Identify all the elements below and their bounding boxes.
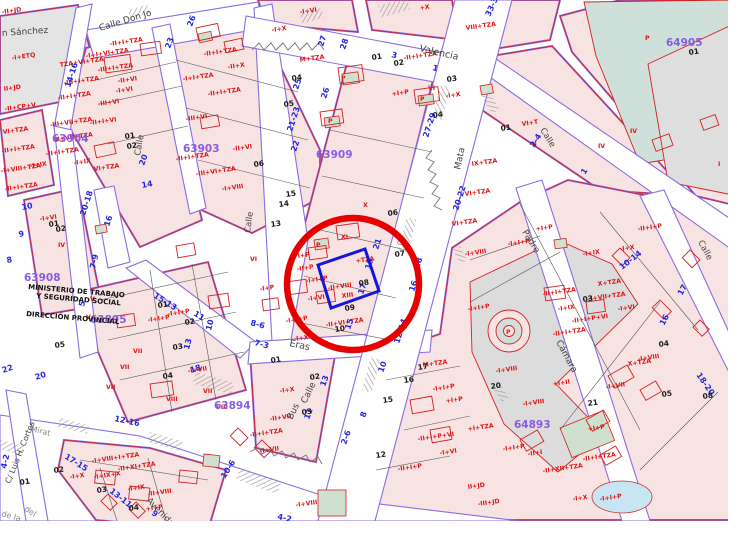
right-margin (728, 0, 738, 540)
red-type-label: P (506, 329, 511, 336)
block-number-label: 63903 (183, 143, 220, 155)
red-type-label: VII (106, 384, 115, 391)
parcel-number-label: 14 (278, 199, 290, 209)
block-number-label: 64893 (514, 419, 551, 431)
red-type-label: VIII (166, 396, 178, 403)
parcel-number-label: 04 (658, 339, 670, 349)
courtyard-rect (554, 238, 567, 249)
parcel-number-label: 06 (387, 208, 399, 218)
parcel-number-label: 01 (19, 477, 31, 487)
red-type-label: VII (120, 364, 129, 371)
block-number-label: 64905 (666, 37, 703, 49)
parcel-number-label: 15 (382, 395, 394, 405)
parcel-number-label: 03 (301, 407, 313, 417)
parcel-number-label: 03 (446, 74, 458, 84)
red-type-label: P (328, 118, 333, 125)
red-type-label: P (645, 35, 650, 42)
parcel-number-label: 01 (500, 123, 512, 133)
courtyard-rect (318, 490, 346, 516)
parcel-number-label: 20 (490, 381, 502, 391)
parcel-number-label: 02 (309, 372, 321, 382)
parcel-number-label: 10 (334, 324, 346, 334)
red-type-label: P (341, 75, 346, 82)
red-type-label: IV (598, 143, 605, 150)
parcel-number-label: 02 (55, 224, 67, 234)
parcel-number-label: 01 (270, 355, 282, 365)
red-type-label: P (316, 242, 321, 249)
parcel-number-label: 17 (417, 362, 429, 372)
bottom-margin (0, 521, 738, 540)
parcel-number-label: 05 (661, 389, 673, 399)
parcel-number-label: 04 (291, 73, 303, 83)
courtyard-rect (203, 454, 220, 468)
red-type-label: VII (203, 388, 212, 395)
cadastral-map-canvas[interactable]: -II+JD-I+ETQII+JD-II+CP+VVI+TZA-II+I+TZA… (0, 0, 738, 540)
red-type-label: X (363, 202, 368, 209)
red-type-label: I (718, 161, 720, 168)
cadastral-map[interactable]: -II+JD-I+ETQII+JD-II+CP+VVI+TZA-II+I+TZA… (0, 0, 738, 540)
parcel-number-label: 05 (54, 340, 66, 350)
parcel-number-label: 08 (702, 391, 714, 401)
parcel-number-label: 06 (253, 159, 265, 169)
red-type-label: IV (58, 242, 65, 249)
parcel-number-label: 03 (96, 485, 108, 495)
parcel-number-label: 04 (162, 371, 174, 381)
parcel-number-label: 04 (432, 110, 444, 120)
parcel-number-label: 02 (53, 465, 65, 475)
parcel-number-label: 01 (371, 52, 383, 62)
red-type-label: P (420, 96, 425, 103)
parcel-number-label: 03 (172, 342, 184, 352)
parcel-number-label: 08 (358, 278, 370, 288)
red-type-label: +X (419, 4, 430, 12)
parcel-number-label: 03 (582, 294, 594, 304)
red-type-label: XI (341, 234, 348, 241)
red-type-label: VII (133, 348, 142, 355)
parcel-number-label: 04 (128, 503, 140, 513)
block-number-label: 63909 (316, 149, 353, 161)
parcel-number-label: 16 (403, 375, 415, 385)
block-number-label: 63894 (214, 400, 251, 412)
parcel-number-label: 05 (283, 99, 295, 109)
red-type-label: VI (250, 256, 257, 263)
parcel-number-label: 01 (124, 131, 136, 141)
parcel-number-label: 13 (270, 219, 282, 229)
parcel-number-label: 15 (285, 189, 297, 199)
parcel-number-label: 02 (184, 317, 196, 327)
red-type-label: IV (630, 128, 637, 135)
red-type-label: VI (428, 85, 435, 92)
courtyard-rect (480, 84, 493, 95)
block-number-label: 63904 (52, 133, 89, 145)
parcel-number-label: 21 (587, 398, 599, 408)
parcel-number-label: 12 (375, 450, 387, 460)
parcel-number-label: 01 (157, 300, 169, 310)
parcel-number-label: 02 (393, 58, 405, 68)
parcel-number-label: 07 (394, 249, 406, 259)
